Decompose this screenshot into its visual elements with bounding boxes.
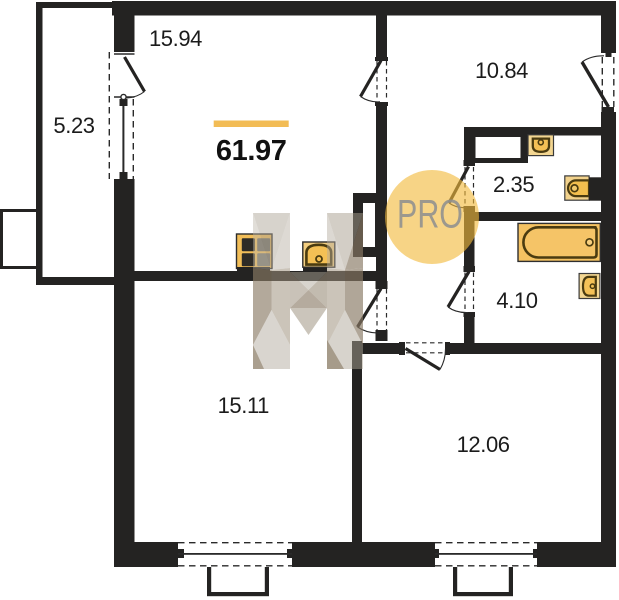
svg-text:10.84: 10.84 bbox=[475, 58, 528, 83]
svg-text:4.10: 4.10 bbox=[496, 288, 537, 313]
svg-text:2.35: 2.35 bbox=[493, 172, 534, 197]
svg-text:15.94: 15.94 bbox=[149, 26, 202, 51]
svg-text:61.97: 61.97 bbox=[216, 135, 287, 167]
svg-text:12.06: 12.06 bbox=[457, 432, 510, 457]
svg-text:5.23: 5.23 bbox=[53, 113, 94, 138]
svg-text:PRO: PRO bbox=[397, 193, 463, 237]
svg-text:15.11: 15.11 bbox=[218, 393, 270, 418]
